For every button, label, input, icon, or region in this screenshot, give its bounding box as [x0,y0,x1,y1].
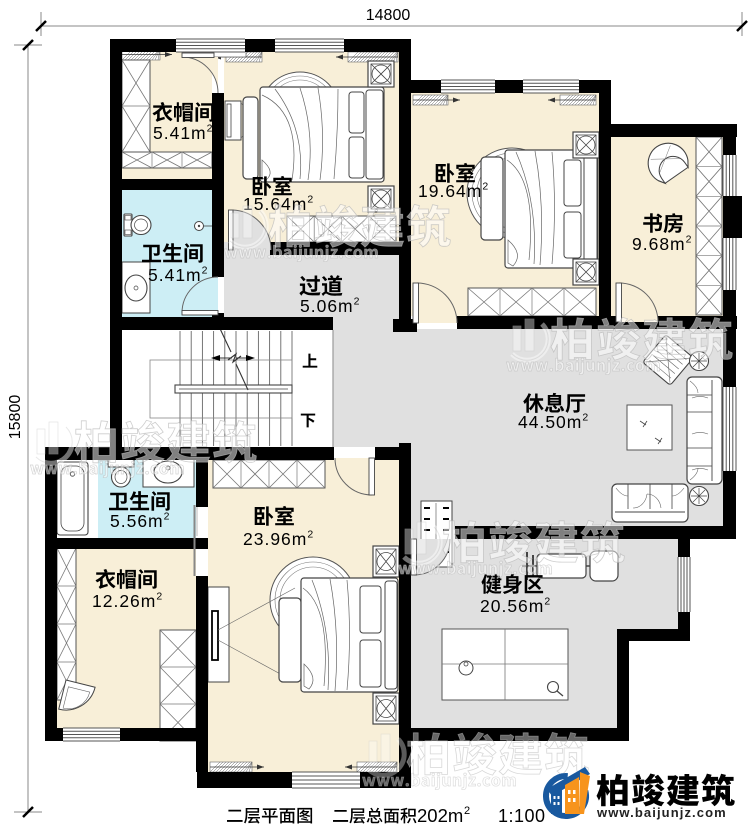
svg-text:9.68m: 9.68m [632,234,686,254]
svg-text:5.56m: 5.56m [110,511,164,531]
svg-text:23.96m: 23.96m [243,529,307,549]
svg-text:5.06m: 5.06m [300,296,354,316]
svg-text:12.26m: 12.26m [92,591,156,611]
svg-text:2: 2 [156,591,162,603]
svg-text:44.50m: 44.50m [518,412,582,432]
svg-text:2: 2 [582,412,588,424]
svg-text:202m: 202m [417,805,463,826]
svg-text:2: 2 [307,529,313,541]
svg-text:2: 2 [164,511,170,523]
svg-text:2: 2 [464,805,470,817]
svg-text:2: 2 [207,123,213,135]
svg-text:2: 2 [686,234,692,246]
svg-text:2: 2 [202,265,208,277]
svg-text:5.41m: 5.41m [153,123,207,143]
svg-text:www.baijunjz.com: www.baijunjz.com [596,805,727,820]
svg-text:2: 2 [544,596,550,608]
svg-text:20.56m: 20.56m [480,596,544,616]
svg-text:15800: 15800 [7,395,24,440]
svg-text:1:100: 1:100 [498,806,546,826]
svg-text:14800: 14800 [366,7,411,24]
svg-text:5.41m: 5.41m [148,265,202,285]
svg-text:2: 2 [354,296,360,308]
svg-text:2: 2 [482,181,488,193]
svg-text:2: 2 [307,194,313,206]
svg-text:19.64m: 19.64m [418,181,482,201]
